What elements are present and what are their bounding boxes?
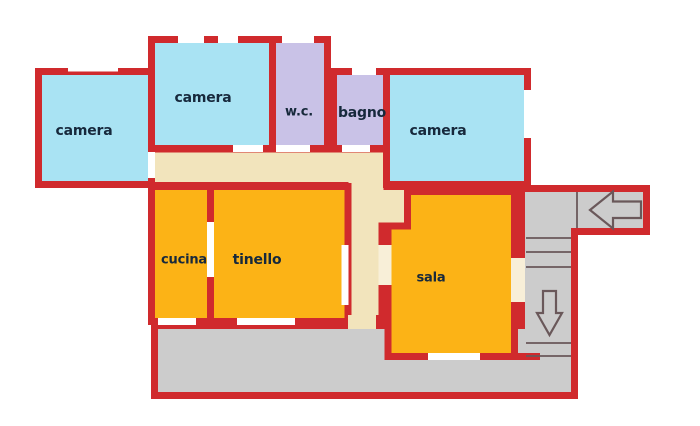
floor-plan-svg: camera camera w.c. bagno camera cucina t… <box>0 0 700 426</box>
label-camera-top: camera <box>175 90 232 106</box>
passage-corridor-balcony <box>348 315 376 329</box>
window-wc <box>282 36 314 43</box>
window-sala <box>428 353 480 360</box>
floor-plan-image: camera camera w.c. bagno camera cucina t… <box>0 0 700 426</box>
window-camera-right <box>524 90 531 138</box>
label-camera-right: camera <box>410 123 467 139</box>
label-wc: w.c. <box>285 105 313 120</box>
door-bagno <box>342 145 370 152</box>
door-camera-left <box>148 152 155 178</box>
door-tinello-corridor <box>342 245 349 305</box>
door-wc <box>276 145 310 152</box>
label-camera-left: camera <box>56 123 113 139</box>
room-sala <box>388 192 515 357</box>
window-tinello <box>237 318 295 325</box>
door-cucina-tinello <box>207 222 214 277</box>
door-camera-top <box>233 145 263 152</box>
passage-corridor-junction <box>352 183 378 190</box>
label-bagno: bagno <box>338 105 387 121</box>
window-camera-top-1 <box>178 36 204 43</box>
room-wc <box>273 40 328 149</box>
door-sala-stairs <box>511 258 525 302</box>
window-cucina <box>158 318 196 325</box>
door-sala-corridor <box>379 245 392 285</box>
window-camera-top-2 <box>218 36 238 43</box>
label-sala: sala <box>417 271 446 286</box>
label-cucina: cucina <box>161 253 207 268</box>
window-camera-left <box>68 65 118 72</box>
label-tinello: tinello <box>233 252 282 268</box>
window-bagno <box>352 68 376 75</box>
